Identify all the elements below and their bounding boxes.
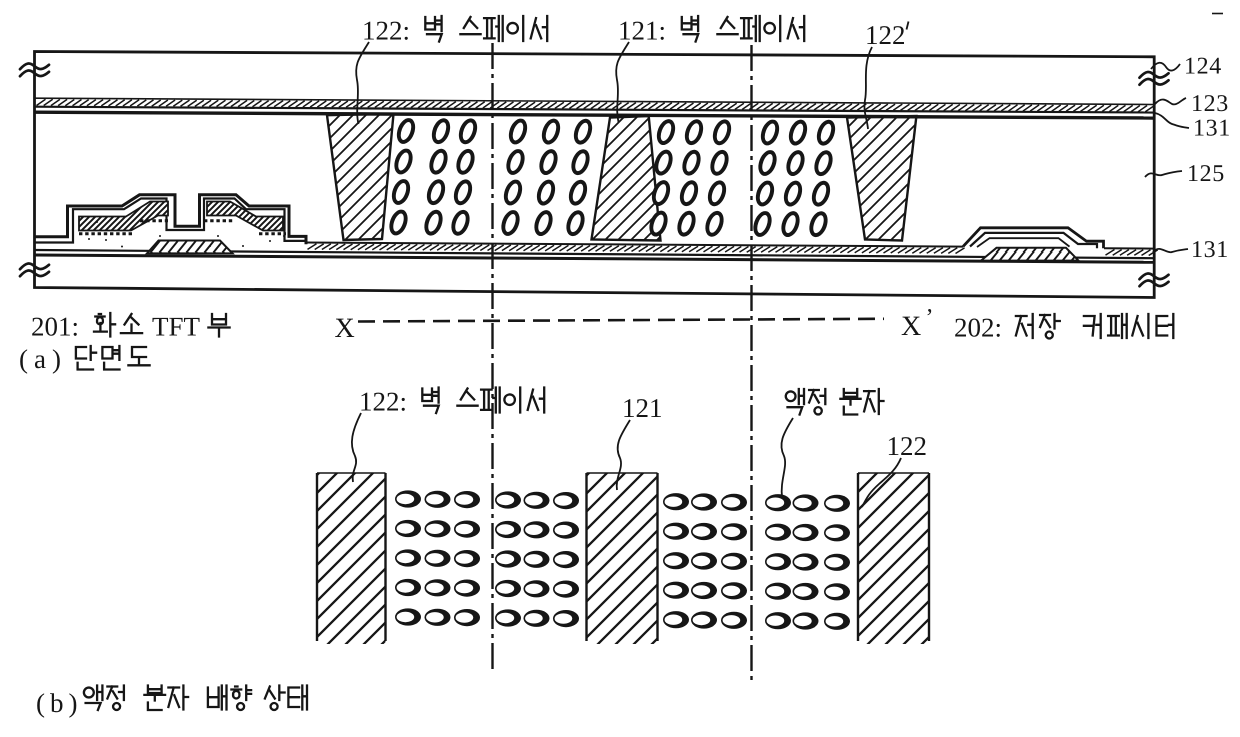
svg-text:124: 124 <box>1184 54 1222 80</box>
svg-text:(b): (b) <box>36 688 82 718</box>
svg-text:122: 122 <box>865 20 906 50</box>
svg-text:X: X <box>335 313 355 344</box>
svg-text:TFT: TFT <box>152 312 201 342</box>
svg-text:131: 131 <box>1193 116 1231 142</box>
svg-text:(a): (a) <box>19 344 67 374</box>
svg-text:121:: 121: <box>618 15 666 45</box>
svg-text:X: X <box>901 311 921 342</box>
svg-text:201:: 201: <box>31 312 79 342</box>
svg-text:202:: 202: <box>954 312 1002 342</box>
svg-text:125: 125 <box>1187 161 1225 187</box>
svg-text:123: 123 <box>1191 91 1229 117</box>
svg-text:122: 122 <box>887 431 928 461</box>
svg-text:122:: 122: <box>359 387 407 417</box>
svg-text:121: 121 <box>622 393 663 423</box>
svg-text:131: 131 <box>1191 237 1229 263</box>
svg-text:122:: 122: <box>362 15 410 45</box>
svg-text:’: ’ <box>926 305 934 331</box>
